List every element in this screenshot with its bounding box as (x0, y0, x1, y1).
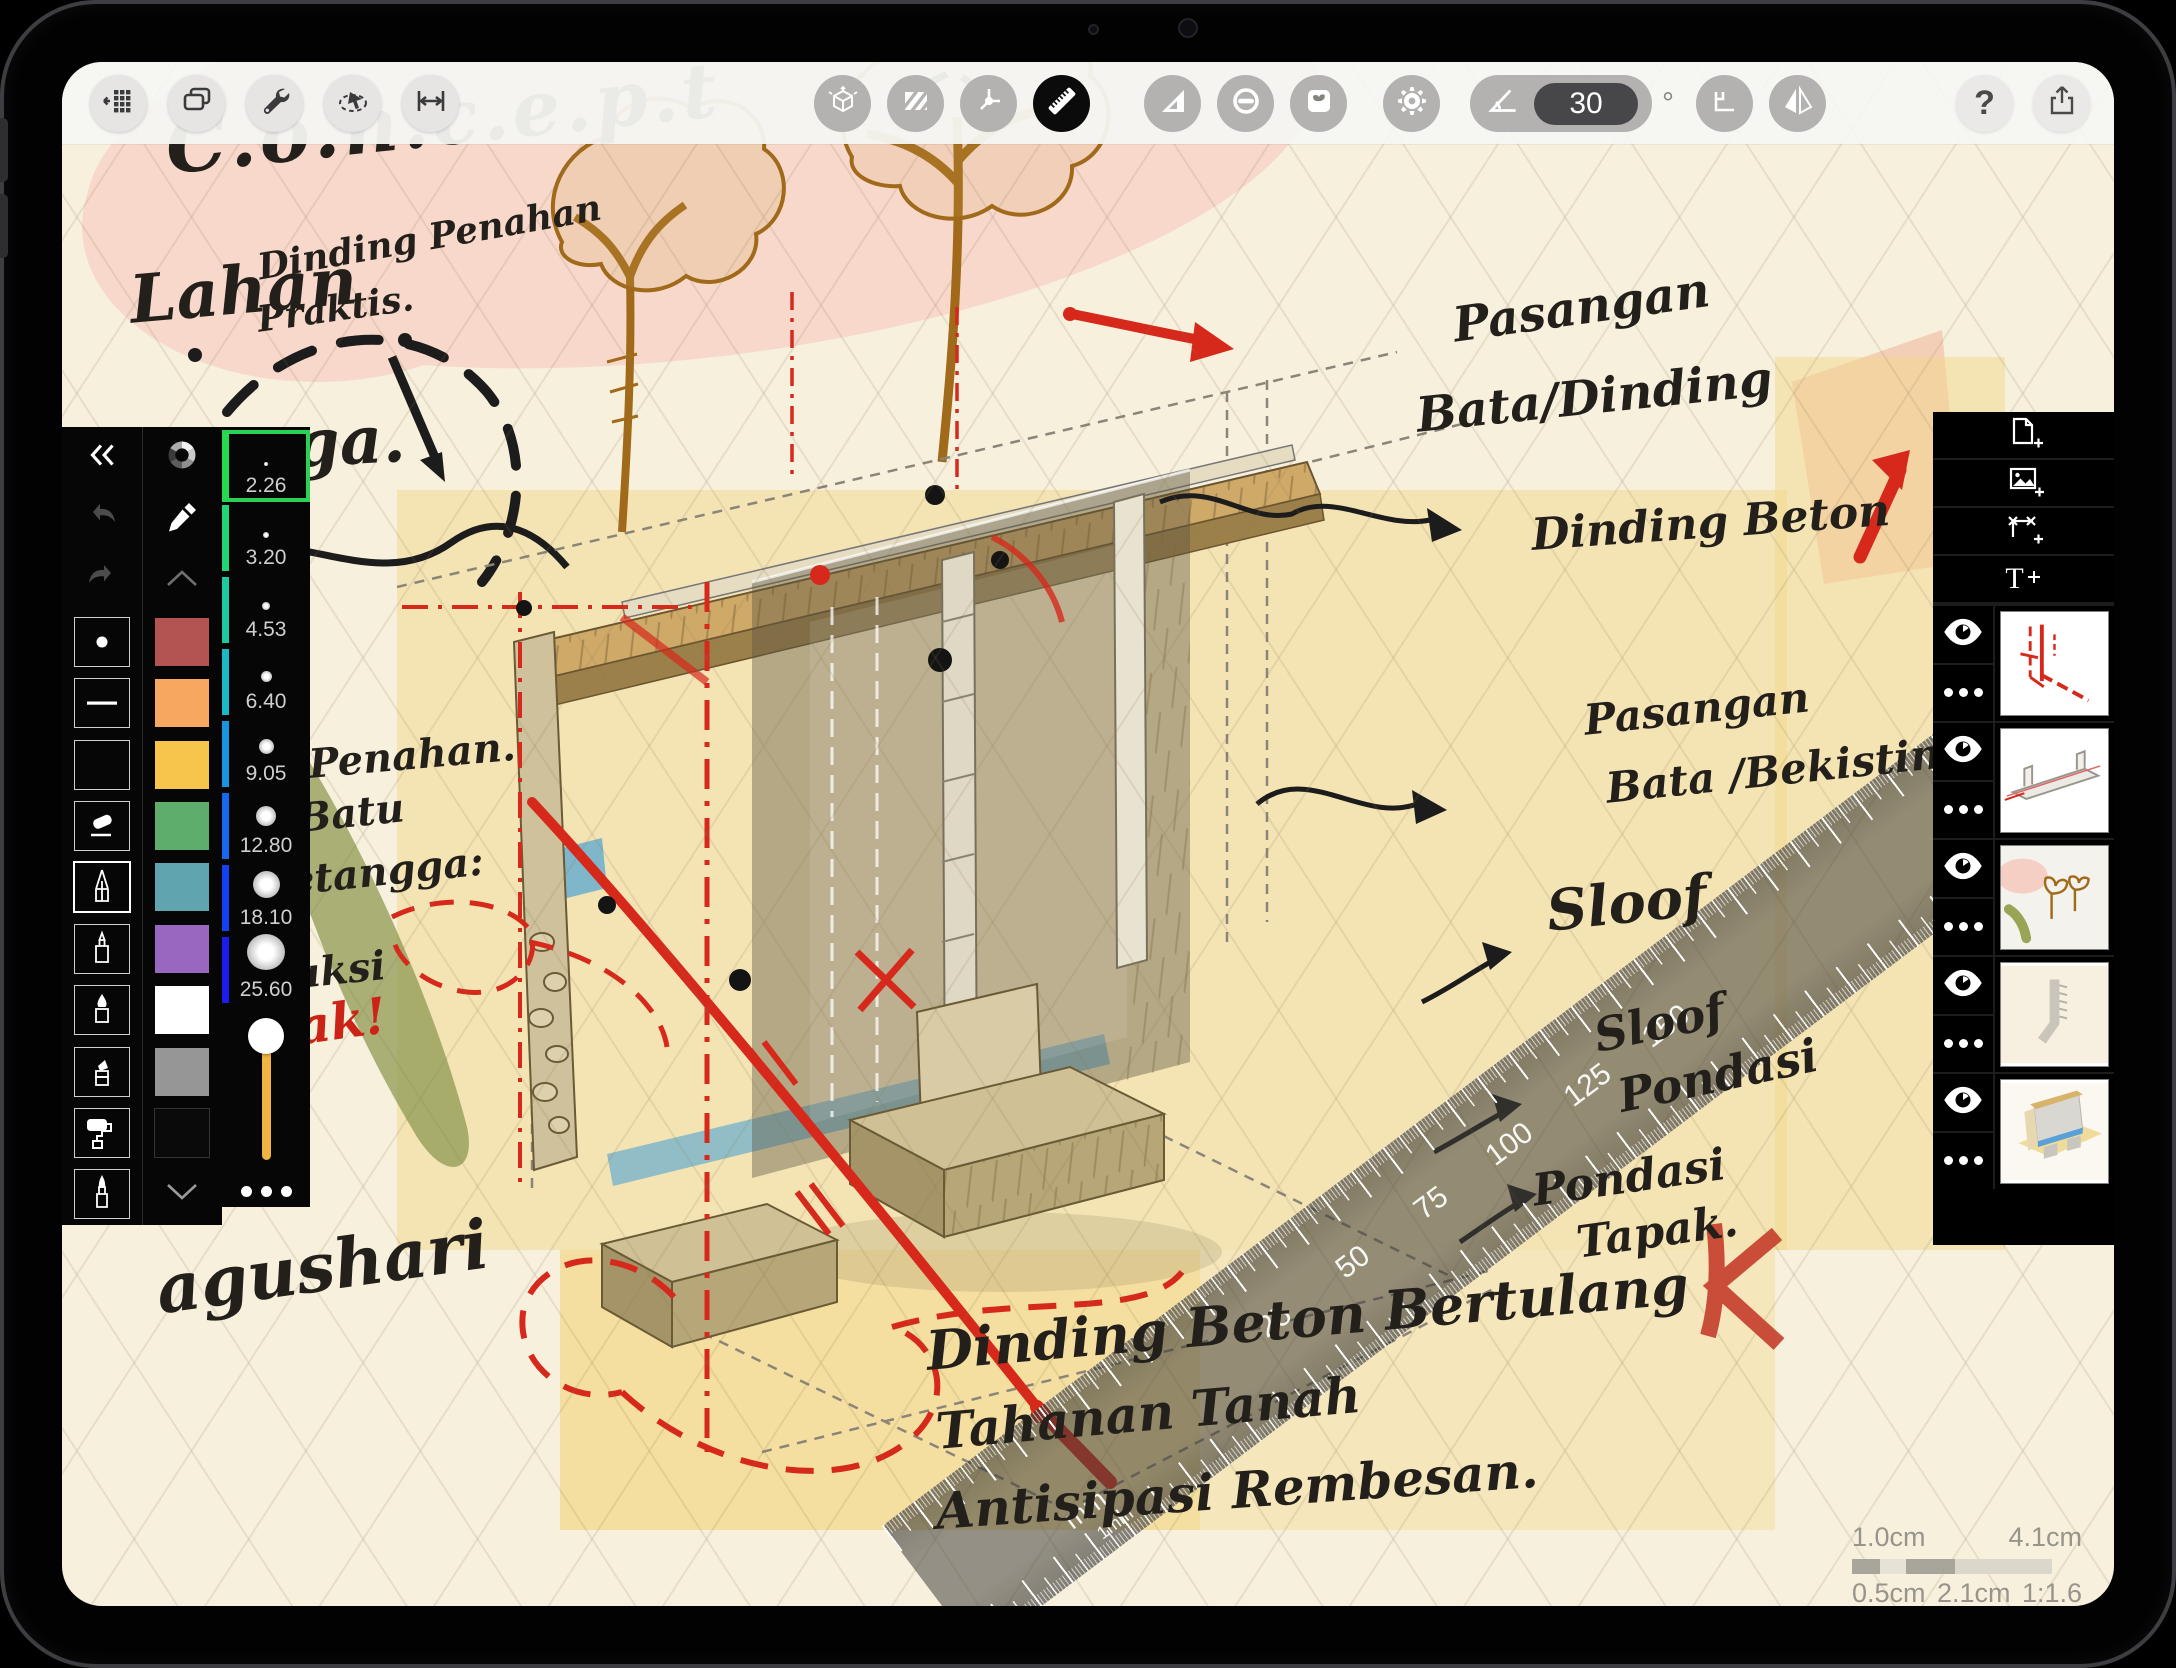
size-dot-preview (247, 934, 285, 970)
size-dot-preview (253, 871, 280, 898)
iso-grid-button[interactable] (814, 75, 871, 132)
sticker-button[interactable] (1290, 75, 1347, 132)
ruler-label-100: 100 (1479, 1116, 1539, 1173)
swatch-white[interactable] (155, 986, 209, 1034)
size-strip (222, 505, 229, 571)
size-value: 6.40 (246, 690, 287, 714)
size-value: 18.10 (240, 906, 293, 930)
volume-down-button[interactable] (0, 194, 8, 258)
snap-corner-button[interactable] (1696, 75, 1753, 132)
add-text-button[interactable]: T (1933, 556, 2114, 604)
tool-panel (62, 427, 222, 1225)
front-camera (1178, 18, 1198, 38)
flip-button[interactable] (1769, 75, 1826, 132)
angle-degree-unit: ° (1662, 87, 1674, 121)
collapse-panel-button[interactable] (83, 436, 121, 479)
iso-cube-icon (825, 83, 861, 124)
add-frame-button[interactable] (1933, 508, 2114, 556)
add-image-button[interactable] (1933, 460, 2114, 508)
size-panel-more-button[interactable] (241, 1186, 292, 1197)
layer-options-button[interactable] (1933, 1014, 1993, 1073)
layer-visibility-toggle[interactable] (1933, 957, 1993, 1014)
size-value: 2.26 (246, 474, 287, 498)
measure-span-icon (413, 83, 449, 124)
layer-options-button[interactable] (1933, 1131, 1993, 1190)
eye-icon (1942, 851, 1984, 886)
size-dot-preview (261, 671, 272, 682)
size-strip (222, 937, 229, 1003)
layer-thumbnail-trees[interactable] (2000, 845, 2109, 950)
tool-pencil-active[interactable] (73, 861, 131, 913)
add-image-icon (2001, 463, 2047, 504)
add-page-button[interactable] (1933, 412, 2114, 460)
undo-button[interactable] (84, 499, 120, 540)
share-button[interactable] (2033, 75, 2090, 132)
size-value: 3.20 (246, 546, 287, 570)
top-toolbar: 30 ° ? (62, 62, 2114, 144)
scale-top-right: 4.1cm (2008, 1522, 2082, 1553)
layer-options-button[interactable] (1933, 663, 1993, 722)
measure-button[interactable] (402, 75, 459, 132)
eye-icon (1942, 734, 1984, 769)
annotation-lahan: Lahan (127, 247, 360, 333)
size-option-4-53[interactable]: 4.53 (222, 574, 310, 646)
tool-marker[interactable] (74, 1047, 130, 1097)
share-icon (2044, 83, 2080, 124)
ellipsis-icon (1944, 922, 1983, 931)
set-square-button[interactable] (1144, 75, 1201, 132)
tool-eraser[interactable] (74, 801, 130, 851)
layer-thumbnail-beam-structure[interactable] (2000, 728, 2109, 833)
color-wheel-button[interactable] (163, 436, 201, 479)
eyedropper-button[interactable] (164, 499, 200, 540)
swatch-green[interactable] (155, 802, 209, 850)
size-value: 12.80 (240, 834, 293, 858)
app-screen: mm 1mm 25 50 75 100 125 150 C.o.n.c.e.p.… (62, 62, 2114, 1606)
help-button[interactable]: ? (1956, 75, 2013, 132)
layer-visibility-toggle[interactable] (1933, 840, 1993, 897)
swatch-maroon[interactable] (155, 618, 209, 666)
sticker-tree-icon (1301, 83, 1337, 124)
add-frame-icon (2001, 511, 2047, 552)
layer-row-beam-structure[interactable] (1933, 721, 2114, 838)
tool-dot[interactable] (74, 617, 130, 667)
tool-rectangle[interactable] (74, 740, 130, 790)
select-lasso-icon (335, 83, 371, 124)
layer-row-trees-background[interactable] (1933, 838, 2114, 955)
size-strip (222, 577, 229, 643)
help-icon: ? (1974, 84, 1995, 123)
collapse-up-chevron[interactable] (163, 566, 201, 595)
tool-fineliner[interactable] (74, 924, 130, 974)
layer-options-button[interactable] (1933, 897, 1993, 956)
add-page-icon (2001, 415, 2047, 456)
add-text-plus-icon (2026, 569, 2042, 590)
layer-row-color-render[interactable] (1933, 1072, 2114, 1189)
layer-row-red-annotations[interactable] (1933, 604, 2114, 721)
duplicate-button[interactable] (168, 75, 225, 132)
collapse-down-chevron[interactable] (163, 1180, 201, 1209)
layers-panel: T (1933, 412, 2114, 1245)
eye-icon (1942, 1085, 1984, 1120)
size-option-3-20[interactable]: 3.20 (222, 502, 310, 574)
ruler-icon (1044, 83, 1080, 124)
size-option-9-05[interactable]: 9.05 (222, 718, 310, 790)
ruler-label-125: 125 (1558, 1057, 1618, 1114)
protractor-button[interactable] (1217, 75, 1274, 132)
layer-thumbnail-red-annotations[interactable] (2000, 611, 2109, 716)
brush-size-panel: 2.26 3.20 4.53 6.40 9.05 (222, 427, 310, 1207)
layer-row-wall-profile[interactable] (1933, 955, 2114, 1072)
flip-horizontal-icon (1780, 83, 1816, 124)
selection-button[interactable] (324, 75, 381, 132)
layer-thumbnail-color-render[interactable] (2000, 1079, 2109, 1184)
angle-value[interactable]: 30 (1534, 83, 1638, 125)
ipad-device-frame: mm 1mm 25 50 75 100 125 150 C.o.n.c.e.p.… (0, 0, 2176, 1668)
layer-options-button[interactable] (1933, 780, 1993, 839)
size-value: 4.53 (246, 618, 287, 642)
protractor-icon (1228, 83, 1264, 124)
drawing-canvas[interactable]: mm 1mm 25 50 75 100 125 150 C.o.n.c.e.p.… (62, 62, 2114, 1606)
scale-ratio: 1:1.6 (2022, 1578, 2082, 1606)
eye-icon (1942, 968, 1984, 1003)
annotation-sloof: Sloof (1544, 867, 1709, 939)
scale-top-left: 1.0cm (1852, 1522, 1926, 1553)
scale-bar (1852, 1559, 2082, 1574)
size-dot-preview (263, 532, 269, 538)
size-strip (222, 433, 229, 499)
scale-bottom-center: 2.1cm (1937, 1578, 2011, 1606)
add-text-icon: T (2005, 564, 2023, 594)
size-option-2-26[interactable]: 2.26 (222, 430, 310, 502)
scale-bottom-left: 0.5cm (1852, 1578, 1926, 1606)
tool-roller[interactable] (74, 1108, 130, 1158)
layer-visibility-toggle[interactable] (1933, 723, 1993, 780)
ellipsis-icon (1944, 1039, 1983, 1048)
eye-icon (1942, 617, 1984, 652)
size-option-12-80[interactable]: 12.80 (222, 790, 310, 862)
size-slider-knob[interactable] (248, 1018, 284, 1054)
projects-button[interactable] (90, 75, 147, 132)
tool-line[interactable] (74, 678, 130, 728)
precision-settings-button[interactable] (1383, 75, 1440, 132)
size-dot-preview (264, 462, 268, 466)
ruler-label-75: 75 (1408, 1180, 1455, 1227)
size-dot-preview (259, 739, 274, 754)
fill-style-button[interactable] (887, 75, 944, 132)
set-square-icon (1155, 83, 1191, 124)
swatch-black[interactable] (154, 1108, 210, 1158)
layer-visibility-toggle[interactable] (1933, 1074, 1993, 1131)
size-value: 25.60 (240, 978, 293, 1002)
ellipsis-icon (1944, 805, 1983, 814)
size-option-6-40[interactable]: 6.40 (222, 646, 310, 718)
size-strip (222, 793, 229, 859)
wrench-icon (257, 83, 293, 124)
ellipsis-icon (1944, 688, 1983, 697)
axes-button[interactable] (960, 75, 1017, 132)
swatch-yellow[interactable] (155, 741, 209, 789)
size-value: 9.05 (246, 762, 287, 786)
swatch-purple[interactable] (155, 925, 209, 973)
ellipsis-icon (1944, 1156, 1983, 1165)
angle-control[interactable]: 30 (1470, 75, 1652, 132)
swatch-orange[interactable] (155, 679, 209, 727)
layer-thumbnail-wall-profile[interactable] (2000, 962, 2109, 1067)
layer-visibility-toggle[interactable] (1933, 606, 1993, 663)
volume-up-button[interactable] (0, 118, 8, 182)
swatch-gray[interactable] (155, 1048, 209, 1096)
size-strip (222, 721, 229, 787)
size-slider[interactable] (262, 1032, 271, 1160)
duplicate-icon (179, 83, 215, 124)
fill-hatch-icon (898, 83, 934, 124)
size-option-25-60[interactable]: 25.60 (222, 934, 310, 1006)
size-strip (222, 865, 229, 931)
tool-pen[interactable] (74, 1169, 130, 1219)
corner-icon (1707, 83, 1743, 124)
size-dot-preview (256, 806, 276, 826)
swatch-teal[interactable] (155, 863, 209, 911)
ruler-tool-button-active[interactable] (1033, 75, 1090, 132)
projects-grid-icon (101, 83, 137, 124)
size-option-18-10[interactable]: 18.10 (222, 862, 310, 934)
sensor-dot (1088, 24, 1099, 35)
angle-icon (1484, 82, 1522, 125)
axes-icon (971, 83, 1007, 124)
redo-button[interactable] (84, 560, 120, 601)
scale-legend: 1.0cm 4.1cm 0.5cm 2.1cm 1:1.6 (1852, 1522, 2082, 1606)
tool-brush[interactable] (74, 985, 130, 1035)
size-strip (222, 649, 229, 715)
settings-tools-button[interactable] (246, 75, 303, 132)
gear-icon (1394, 83, 1430, 124)
size-dot-preview (262, 602, 270, 610)
